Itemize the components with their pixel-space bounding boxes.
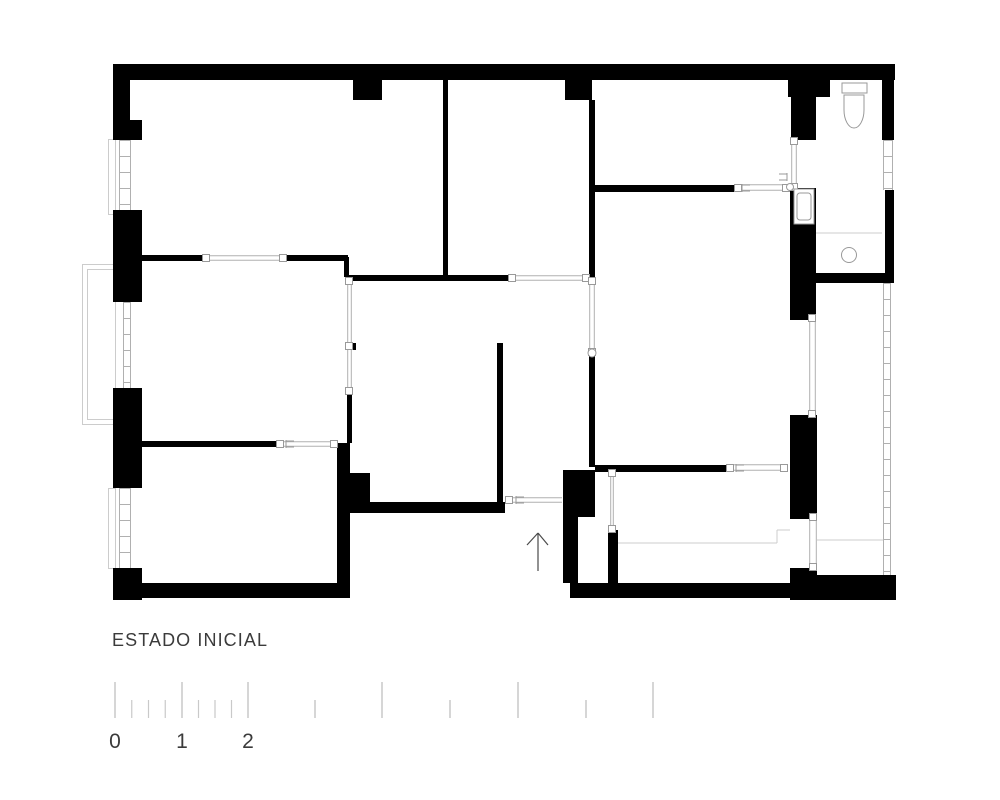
toilet-bowl	[844, 95, 864, 128]
wall-segment	[142, 441, 277, 447]
scale-bar: 012	[109, 682, 653, 753]
wall-segment	[113, 120, 142, 140]
door-jamb	[203, 255, 210, 262]
door-jamb	[727, 465, 734, 472]
north-arrow-icon	[527, 533, 548, 571]
balcony-outlines	[83, 140, 116, 569]
wall-segment	[790, 568, 817, 600]
wall-segment	[791, 97, 816, 140]
door-jamb	[809, 315, 816, 322]
windows	[119, 140, 893, 575]
door-jamb	[809, 411, 816, 418]
wall-segment	[113, 568, 142, 600]
wall-segment	[113, 64, 895, 80]
toilet-icon	[842, 83, 867, 128]
wall-segment	[347, 392, 352, 443]
door-jamb	[609, 526, 616, 533]
door-jamb	[331, 441, 338, 448]
wall-segment	[142, 255, 203, 261]
wall-segment	[337, 443, 350, 583]
door-marks	[286, 173, 787, 504]
door-jamb	[781, 465, 788, 472]
door-jamb	[791, 138, 798, 145]
walls	[113, 64, 896, 600]
fixture-circle	[842, 248, 857, 263]
drawing-sheet: 012 ESTADO INICIAL	[0, 0, 1000, 800]
floor-plan-drawing: 012	[0, 0, 1000, 800]
door-jamb	[735, 185, 742, 192]
wall-segment	[813, 273, 894, 283]
door-jamb	[810, 514, 817, 521]
door-jamb	[346, 278, 353, 285]
scale-label: 2	[242, 730, 254, 753]
wall-segment	[345, 275, 508, 281]
wall-segment	[353, 79, 382, 100]
wall-segment	[565, 79, 592, 100]
wall-segment	[882, 79, 894, 140]
door-jamb	[509, 275, 516, 282]
wall-segment	[589, 185, 735, 192]
wall-segment	[113, 388, 142, 488]
wall-segment	[817, 575, 896, 600]
sink-icon	[794, 189, 814, 224]
balcony-outline	[109, 489, 116, 569]
fixture-circle	[787, 184, 794, 191]
door-jamb	[346, 343, 353, 350]
wall-segment	[142, 583, 350, 598]
scale-label: 1	[176, 730, 188, 753]
door-jamb	[277, 441, 284, 448]
wall-segment	[113, 210, 142, 302]
north-arrow-wing	[538, 533, 548, 545]
door-openings	[210, 140, 816, 568]
north-arrow-wing	[527, 533, 538, 545]
wall-segment	[885, 190, 894, 275]
toilet-tank	[842, 83, 867, 93]
balcony-outline	[109, 140, 116, 215]
wall-segment	[563, 470, 595, 517]
wall-segment	[589, 350, 595, 467]
drawing-title: ESTADO INICIAL	[112, 630, 268, 651]
door-jamb	[346, 388, 353, 395]
wall-segment	[790, 415, 817, 519]
fixture-circle	[588, 349, 596, 357]
wall-segment	[788, 79, 830, 97]
wall-segment	[350, 473, 370, 502]
door-jamb	[280, 255, 287, 262]
wall-segment	[608, 530, 618, 583]
door-jamb	[609, 470, 616, 477]
wall-segment	[443, 79, 448, 276]
door-jambs	[203, 138, 817, 571]
door-jamb	[506, 497, 513, 504]
sink-basin	[797, 193, 811, 220]
door-jamb	[810, 564, 817, 571]
wall-segment	[497, 343, 503, 513]
fixture-circles	[588, 184, 857, 358]
wall-segment	[350, 502, 505, 513]
balcony-outline	[88, 270, 116, 420]
door-jamb	[589, 278, 596, 285]
scale-label: 0	[109, 730, 121, 753]
wall-segment	[563, 517, 578, 583]
wall-segment	[286, 255, 348, 261]
